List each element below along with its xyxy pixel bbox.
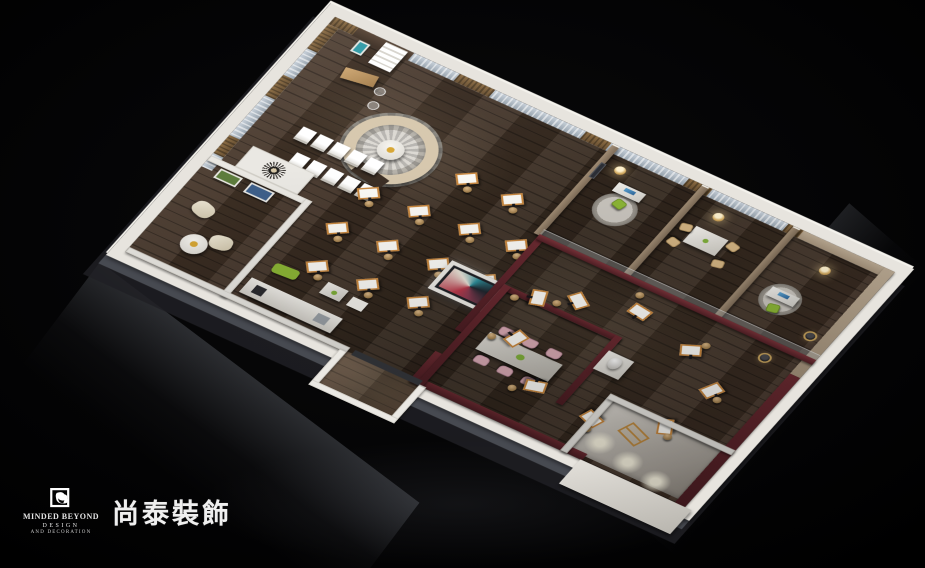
logo-english-block: MINDED BEYOND DESIGN AND DECORATION	[22, 487, 100, 535]
easel	[501, 193, 524, 206]
easel	[356, 278, 379, 291]
company-logo: MINDED BEYOND DESIGN AND DECORATION 尚泰裝飾	[22, 487, 232, 535]
easel	[326, 222, 349, 235]
easel	[306, 260, 329, 273]
floorplan	[125, 17, 895, 507]
easel	[376, 240, 399, 253]
logo-tagline-design: DESIGN	[43, 523, 80, 529]
easel	[679, 344, 702, 357]
logo-chinese-name: 尚泰裝飾	[112, 492, 232, 531]
logo-tagline-decoration: AND DECORATION	[31, 530, 92, 535]
logo-name: MINDED BEYOND	[23, 512, 99, 521]
easel	[455, 172, 478, 185]
render-canvas: MINDED BEYOND DESIGN AND DECORATION 尚泰裝飾	[0, 0, 925, 568]
easel	[407, 205, 430, 218]
brand-mark-icon	[50, 487, 72, 509]
floorplan-3d-view	[125, 17, 895, 507]
easel	[406, 296, 429, 309]
easel	[357, 187, 380, 200]
easel	[458, 223, 481, 236]
